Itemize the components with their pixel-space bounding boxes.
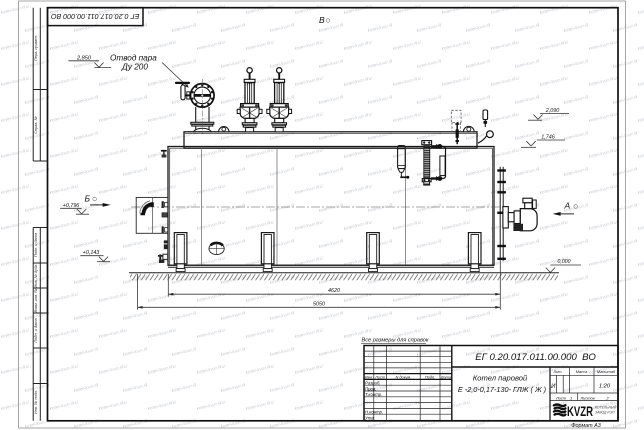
svg-text:Подп. и дата: Подп. и дата [33,317,38,342]
svg-text:Отвод пара: Отвод пара [110,54,157,63]
svg-text:Перв. примен.: Перв. примен. [33,35,38,61]
svg-text:Изм.: Изм. [365,374,373,379]
svg-text:+0,143: +0,143 [83,250,100,256]
svg-text:Все размеры для справок: Все размеры для справок [362,338,429,344]
svg-text:KVZR: KVZR [567,404,593,419]
svg-text:Разраб.: Разраб. [365,381,381,386]
svg-text:Подп.: Подп. [425,374,435,379]
svg-text:ЕГ 0.20.017.011.00.000 ВО: ЕГ 0.20.017.011.00.000 ВО [51,12,140,21]
svg-text:1,746: 1,746 [541,135,555,141]
svg-text:Инв. № подл.: Инв. № подл. [33,390,38,414]
svg-text:ЕГ 0.20.017.011.00.000 ВО: ЕГ 0.20.017.011.00.000 ВО [475,352,596,363]
svg-text:0,000: 0,000 [558,259,571,265]
svg-text:КОТЕЛЬНЫЙ: КОТЕЛЬНЫЙ [595,406,617,410]
svg-text:Инв. № дубл.: Инв. № дубл. [33,264,38,288]
svg-text:Формат А3: Формат А3 [571,423,601,429]
svg-text:Лит.: Лит. [552,369,562,374]
svg-text:Ду 200: Ду 200 [121,63,148,72]
svg-text:1: 1 [570,395,572,400]
svg-text:ЗАВОД РЭП: ЗАВОД РЭП [595,410,615,414]
svg-text:N докум.: N докум. [396,374,412,379]
svg-text:2,090: 2,090 [545,108,560,114]
svg-text:Котел паровой: Котел паровой [473,374,528,383]
svg-text:Лист: Лист [374,374,386,379]
svg-text:1:20: 1:20 [599,384,611,390]
svg-text:Справ. №: Справ. № [33,115,38,133]
svg-text:Подп. и дата: Подп. и дата [33,232,38,257]
svg-text:Т.контр.: Т.контр. [365,392,382,397]
svg-text:Дата: Дата [440,374,452,379]
svg-text:Лист: Лист [555,395,567,400]
svg-text:Утв.: Утв. [365,415,375,420]
svg-text:Масса: Масса [576,369,588,374]
svg-text:Пров.: Пров. [365,386,376,391]
svg-text:В: В [319,15,325,25]
svg-text:Взам. инв. №: Взам. инв. № [33,288,38,313]
svg-text:Н.контр.: Н.контр. [365,410,383,415]
svg-text:И: И [551,384,556,390]
svg-text:Б: Б [85,194,91,204]
svg-text:А: А [564,201,571,211]
svg-text:4620: 4620 [328,288,340,294]
svg-text:Листов: Листов [580,395,595,400]
svg-text:Е -2,0-0,17-130- ГЛЖ ( Ж ): Е -2,0-0,17-130- ГЛЖ ( Ж ) [458,385,546,394]
svg-text:2,850: 2,850 [76,55,92,61]
svg-text:Масштаб: Масштаб [597,369,616,374]
svg-text:5050: 5050 [313,301,325,307]
svg-text:+0,796: +0,796 [63,203,80,209]
